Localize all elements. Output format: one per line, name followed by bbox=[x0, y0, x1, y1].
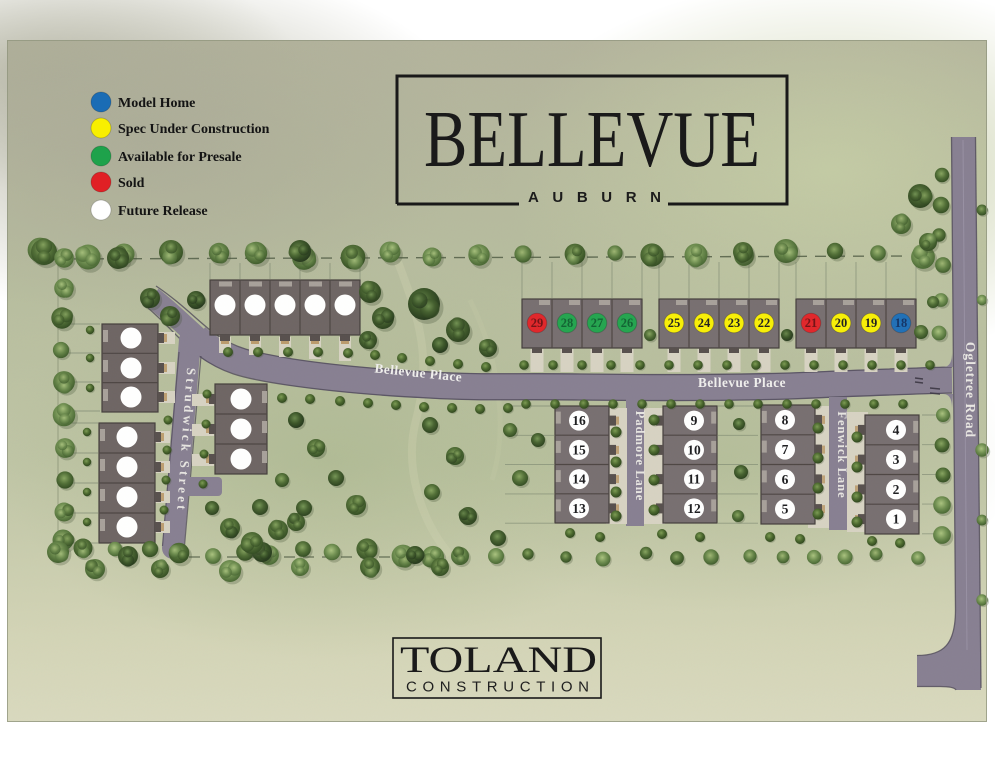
svg-text:Padmore Lane: Padmore Lane bbox=[633, 411, 647, 502]
svg-text:Available for Presale: Available for Presale bbox=[118, 150, 242, 165]
svg-text:CONSTRUCTION: CONSTRUCTION bbox=[406, 679, 589, 696]
svg-text:Future Release: Future Release bbox=[118, 204, 208, 219]
svg-text:Bellevue Place: Bellevue Place bbox=[698, 375, 786, 390]
svg-text:Ogletree Road: Ogletree Road bbox=[963, 342, 978, 438]
svg-text:Spec Under Construction: Spec Under Construction bbox=[118, 122, 270, 137]
svg-text:Model Home: Model Home bbox=[118, 96, 195, 111]
svg-text:Fenwick Lane: Fenwick Lane bbox=[835, 411, 849, 498]
svg-text:Sold: Sold bbox=[118, 176, 145, 191]
svg-text:BELLEVUE: BELLEVUE bbox=[424, 96, 760, 184]
svg-text:TOLAND: TOLAND bbox=[400, 640, 597, 681]
